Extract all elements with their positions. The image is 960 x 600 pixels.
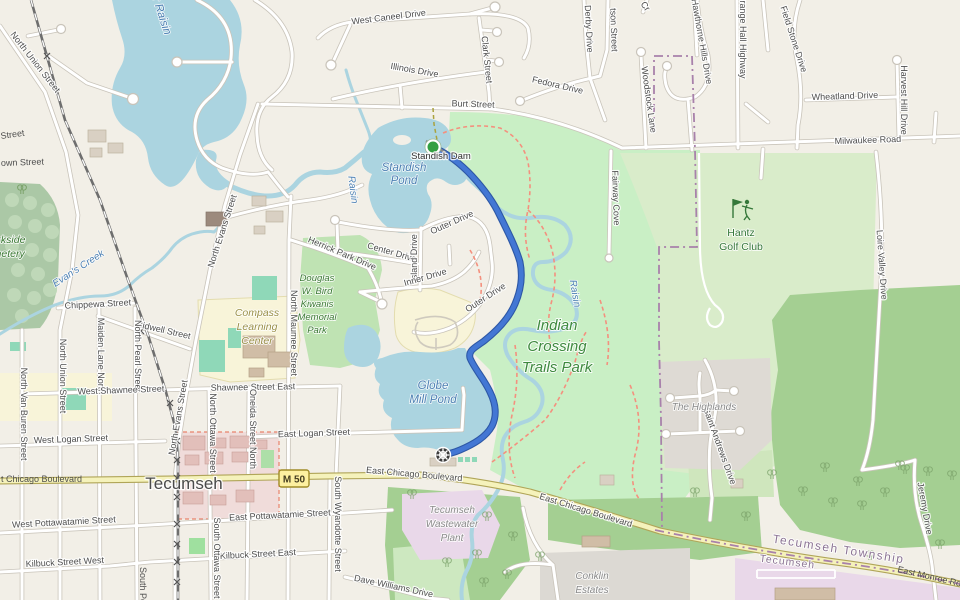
- park-label-trails-park: Trails Park: [522, 359, 594, 376]
- park-label-crossing: Crossing: [527, 338, 587, 355]
- street-label-north-van-buren-street: North Van Buren Street: [19, 368, 29, 461]
- park-label-golf-club: Golf Club: [719, 241, 763, 253]
- conklin-area: [540, 548, 690, 600]
- street-label-own-street-fragment: own Street: [1, 156, 45, 168]
- area-label-wastewater: Wastewater: [426, 519, 479, 530]
- douglas-pond: [344, 325, 381, 367]
- area-label-tecumseh-ww: Tecumseh: [429, 505, 475, 516]
- street-label-north-union-street: North Union Street: [58, 339, 68, 414]
- industrial-building: [775, 588, 835, 600]
- street-label-harvest-hill-drive: Harvest Hill Drive: [899, 65, 909, 135]
- map-canvas[interactable]: West Caneel Drive Illinois Drive Clark S…: [0, 0, 960, 600]
- park-label-parkside: Parkside: [0, 234, 26, 246]
- area-label-center: Center: [241, 335, 273, 347]
- route-shield-m50: M 50: [279, 470, 309, 487]
- area-label-compass: Compass: [235, 307, 280, 319]
- street-label-south-wyandotte-street: South Wyandotte Street: [333, 476, 343, 572]
- street-label-north-pearl-street: North Pearl Street: [133, 320, 143, 393]
- area-label-learning: Learning: [237, 321, 278, 333]
- park-label-memorial: Memorial: [297, 312, 337, 323]
- watermill-icon[interactable]: [436, 448, 451, 463]
- area-label-estates: Estates: [575, 585, 608, 596]
- street-label-chicago-boulevard-west: t Chicago Boulevard: [1, 474, 82, 484]
- forest-area-southeast: [770, 285, 960, 548]
- poi-label-standish-dam: Standish Dam: [411, 151, 471, 162]
- water-label-globe: Globe: [418, 380, 449, 392]
- school-area-west: [0, 373, 112, 421]
- street-label-maiden-lane-north: Maiden Lane North: [96, 318, 106, 395]
- area-label-the-highlands: The Highlands: [672, 402, 736, 413]
- park-label-indian: Indian: [537, 317, 578, 334]
- street-label-north-ottawa-street: North Ottawa Street: [208, 393, 218, 473]
- park-label-douglas: Douglas: [300, 273, 335, 284]
- water-label-standish-pond: Pond: [391, 175, 418, 187]
- pond-island: [393, 135, 411, 145]
- park-label-hantz: Hantz: [727, 227, 754, 239]
- street-label-north-maumee-street: North Maumee Street: [289, 290, 299, 377]
- street-label-oneida-street-north: Oneida Street North: [248, 389, 258, 469]
- water-label-mill-pond: Mill Pond: [409, 394, 457, 406]
- street-label-grange-hall-highway: Grange Hall Highway: [738, 0, 748, 79]
- small-park-2: [189, 538, 205, 554]
- street-label-south-ottawa-street: South Ottawa Street: [212, 517, 222, 599]
- street-label-burt-street: Burt Street: [451, 98, 495, 110]
- street-label-south-pearl-street: South Pearl Street: [138, 567, 148, 600]
- shield-label: M 50: [283, 475, 306, 486]
- area-label-plant: Plant: [441, 533, 465, 544]
- park-label-cemetery: Cemetery: [0, 248, 26, 260]
- park-label-w-bird: W. Bird: [302, 286, 334, 297]
- area-label-conklin: Conklin: [575, 571, 609, 582]
- park-label-park: Park: [307, 325, 328, 336]
- street-label-tson-street: tson Street: [608, 8, 620, 52]
- water-label-standish: Standish: [382, 162, 427, 174]
- park-label-kiwanis: Kiwanis: [301, 299, 334, 310]
- conklin-building: [582, 536, 610, 547]
- map-svg[interactable]: West Caneel Drive Illinois Drive Clark S…: [0, 0, 960, 600]
- street-label-fairway-cove: Fairway Cove: [610, 170, 622, 225]
- small-park-1: [261, 450, 274, 468]
- place-label-tecumseh: Tecumseh: [145, 474, 222, 493]
